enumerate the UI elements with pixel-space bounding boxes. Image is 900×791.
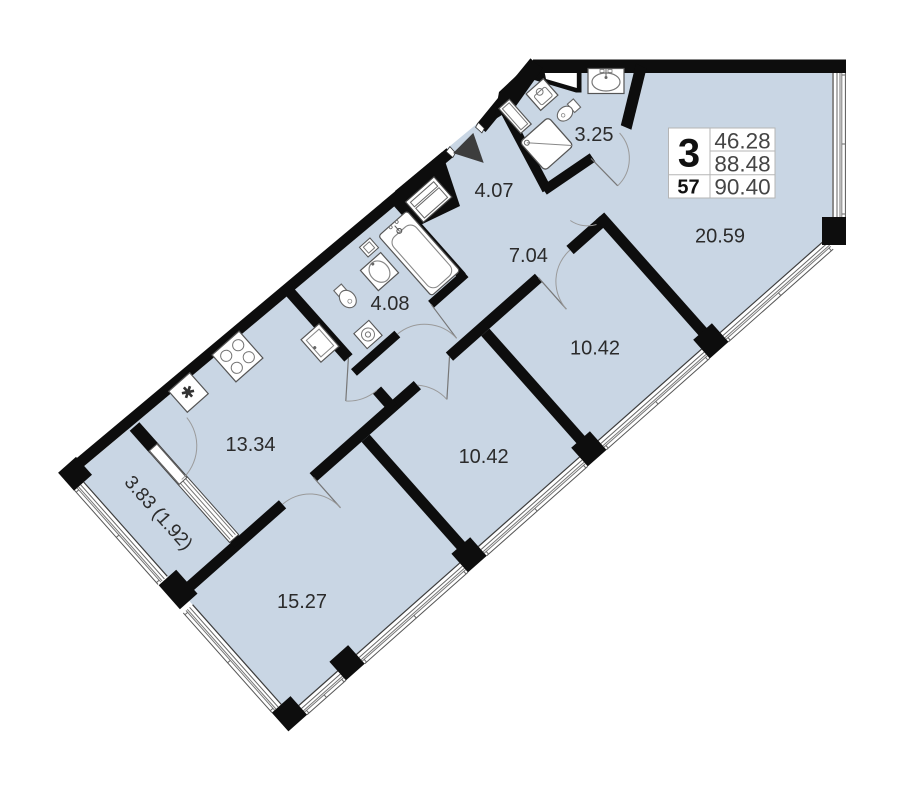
svg-text:15.27: 15.27 <box>277 591 327 613</box>
svg-text:20.59: 20.59 <box>695 226 745 248</box>
svg-text:10.42: 10.42 <box>570 338 620 360</box>
svg-text:4.08: 4.08 <box>371 293 410 315</box>
svg-text:10.42: 10.42 <box>459 446 509 468</box>
svg-text:90.40: 90.40 <box>714 175 770 200</box>
svg-text:13.34: 13.34 <box>225 434 275 456</box>
svg-text:3: 3 <box>678 131 700 175</box>
svg-text:4.07: 4.07 <box>475 180 514 202</box>
svg-text:3.25: 3.25 <box>575 124 614 146</box>
svg-text:88.48: 88.48 <box>714 152 770 177</box>
svg-text:57: 57 <box>677 177 699 199</box>
svg-text:46.28: 46.28 <box>714 129 770 154</box>
svg-text:7.04: 7.04 <box>509 245 548 267</box>
